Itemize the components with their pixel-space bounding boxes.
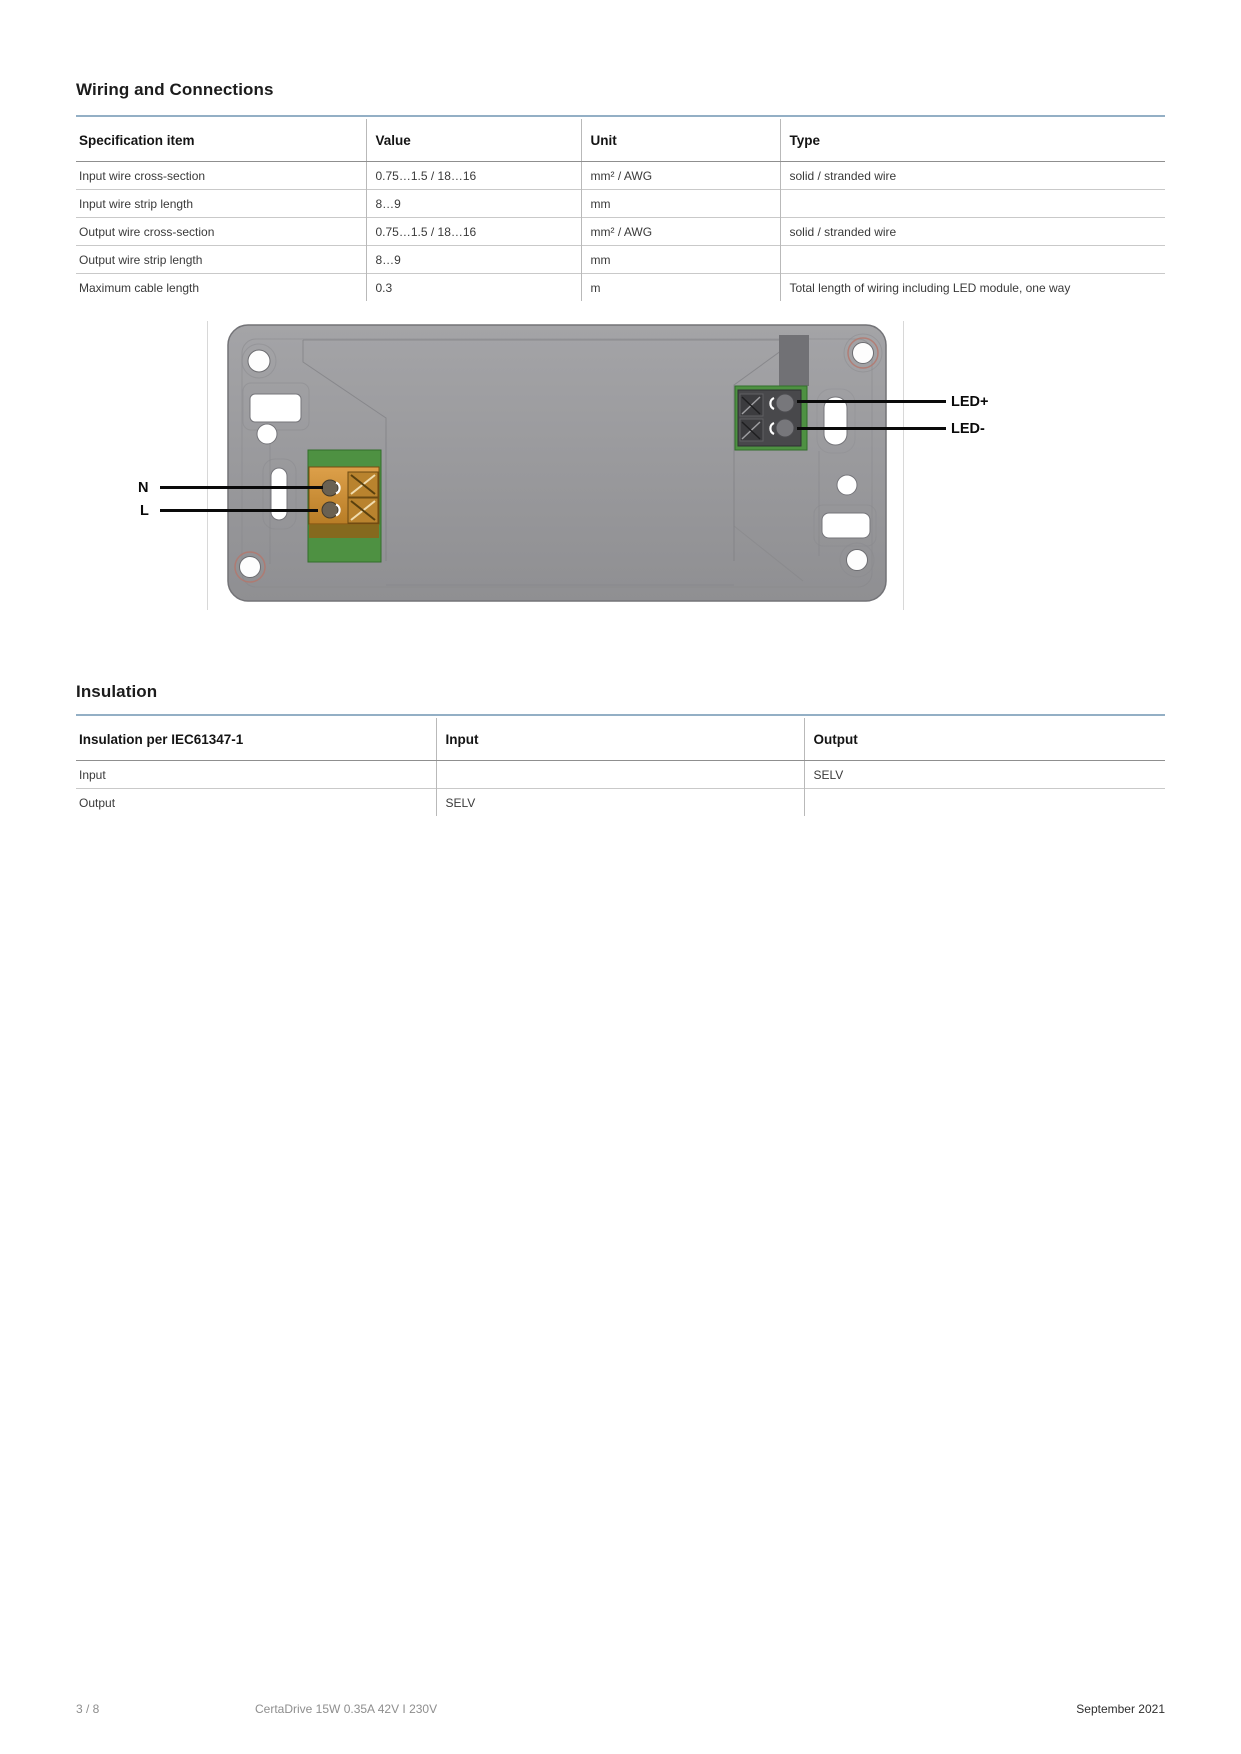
table-row: Input wire strip length8…9mm xyxy=(76,190,1165,218)
footer-product-name: CertaDrive 15W 0.35A 42V I 230V xyxy=(255,1702,437,1717)
table-cell: Input xyxy=(76,761,436,789)
insulation-table: Insulation per IEC61347-1InputOutput Inp… xyxy=(76,718,1165,816)
table-cell xyxy=(804,789,1165,817)
table-cell: solid / stranded wire xyxy=(780,218,1165,246)
mounting-hole xyxy=(853,343,874,364)
column-header: Value xyxy=(366,119,581,162)
column-header: Insulation per IEC61347-1 xyxy=(76,718,436,761)
footer-page-number: 3 / 8 xyxy=(76,1702,99,1717)
device-figure xyxy=(207,321,904,610)
table-cell: Output wire strip length xyxy=(76,246,366,274)
table-cell: mm xyxy=(581,190,780,218)
table-cell: 0.3 xyxy=(366,274,581,302)
table-row: OutputSELV xyxy=(76,789,1165,817)
table-cell: 0.75…1.5 / 18…16 xyxy=(366,218,581,246)
label-line-led-minus xyxy=(797,427,946,430)
table-header-row: Specification itemValueUnitType xyxy=(76,119,1165,162)
table-cell: m xyxy=(581,274,780,302)
label-line-l: L xyxy=(140,503,149,519)
table-cell: 8…9 xyxy=(366,190,581,218)
mounting-hole xyxy=(240,557,261,578)
table-cell: Total length of wiring including LED mod… xyxy=(780,274,1165,302)
column-header: Specification item xyxy=(76,119,366,162)
table-cell: Maximum cable length xyxy=(76,274,366,302)
table-cell: SELV xyxy=(804,761,1165,789)
label-neutral: N xyxy=(138,480,148,496)
table-cell xyxy=(780,190,1165,218)
table-cell: mm xyxy=(581,246,780,274)
section-divider xyxy=(76,115,1165,117)
table-cell: 8…9 xyxy=(366,246,581,274)
input-clamps xyxy=(348,472,378,523)
section-heading-wiring: Wiring and Connections xyxy=(76,80,274,100)
table-cell: Input wire cross-section xyxy=(76,162,366,190)
table-cell: mm² / AWG xyxy=(581,162,780,190)
table-row: Output wire cross-section0.75…1.5 / 18…1… xyxy=(76,218,1165,246)
table-cell: 0.75…1.5 / 18…16 xyxy=(366,162,581,190)
led-driver-illustration xyxy=(208,321,903,610)
table-cell: SELV xyxy=(436,789,804,817)
table-cell: Input wire strip length xyxy=(76,190,366,218)
table-cell: mm² / AWG xyxy=(581,218,780,246)
table-cell: solid / stranded wire xyxy=(780,162,1165,190)
input-terminal-shadow xyxy=(309,524,379,538)
mounting-hole xyxy=(248,350,270,372)
wiring-table: Specification itemValueUnitType Input wi… xyxy=(76,119,1165,301)
column-header: Unit xyxy=(581,119,780,162)
column-header: Output xyxy=(804,718,1165,761)
section-divider xyxy=(76,714,1165,716)
label-line-line xyxy=(160,509,318,512)
label-line-led-plus xyxy=(797,400,946,403)
footer-date: September 2021 xyxy=(1076,1702,1165,1717)
table-row: Input wire cross-section0.75…1.5 / 18…16… xyxy=(76,162,1165,190)
table-header-row: Insulation per IEC61347-1InputOutput xyxy=(76,718,1165,761)
label-led-minus: LED- xyxy=(951,421,985,437)
table-row: Maximum cable length0.3mTotal length of … xyxy=(76,274,1165,302)
column-header: Type xyxy=(780,119,1165,162)
label-led-plus: LED+ xyxy=(951,394,988,410)
cable-guide-slab xyxy=(779,335,809,386)
table-cell: Output wire cross-section xyxy=(76,218,366,246)
datasheet-page: Wiring and Connections Specification ite… xyxy=(0,0,1241,1754)
section-heading-insulation: Insulation xyxy=(76,682,157,702)
table-cell xyxy=(436,761,804,789)
table-row: InputSELV xyxy=(76,761,1165,789)
table-cell xyxy=(780,246,1165,274)
table-row: Output wire strip length8…9mm xyxy=(76,246,1165,274)
label-line-neutral xyxy=(160,486,323,489)
column-header: Input xyxy=(436,718,804,761)
mounting-hole xyxy=(847,550,868,571)
table-cell: Output xyxy=(76,789,436,817)
